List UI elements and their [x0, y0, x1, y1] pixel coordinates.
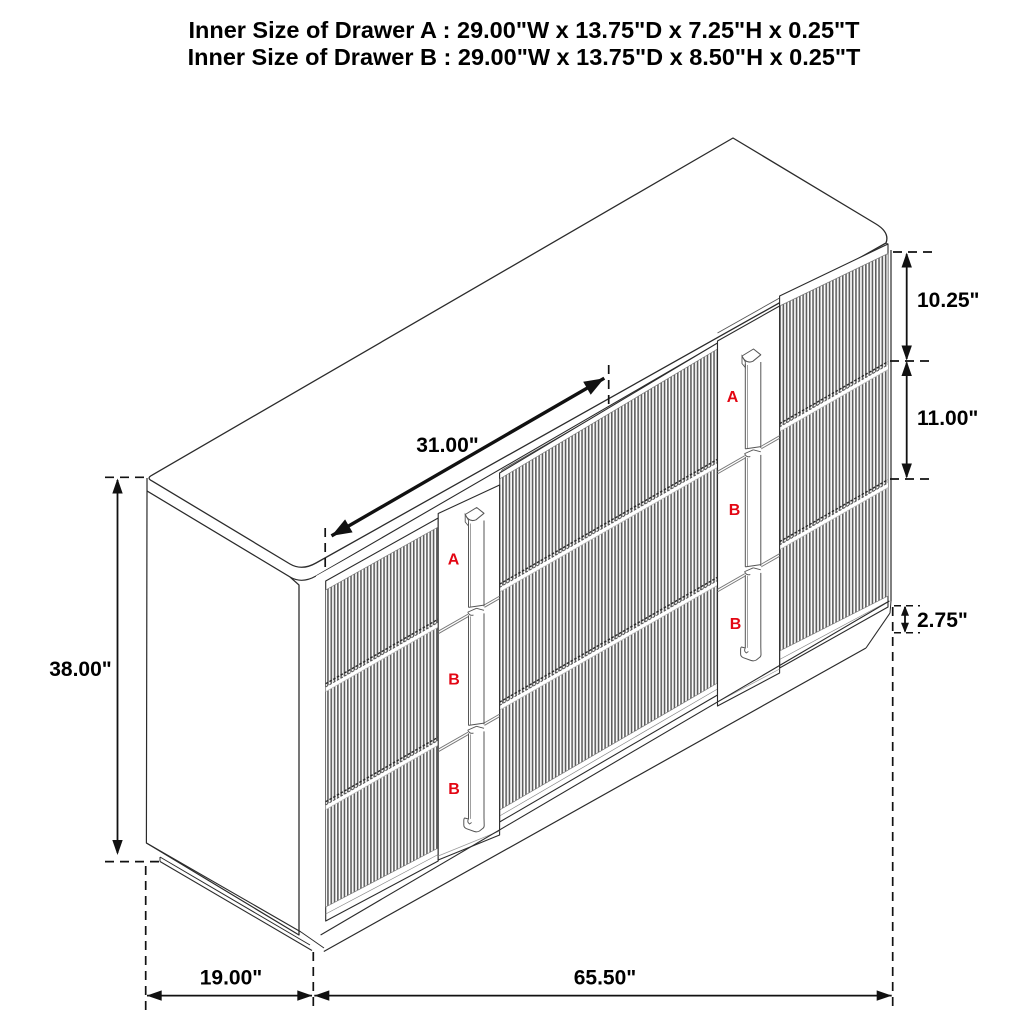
- svg-text:38.00": 38.00": [49, 658, 112, 681]
- svg-text:2.75": 2.75": [917, 609, 968, 632]
- svg-text:65.50": 65.50": [574, 967, 637, 990]
- svg-text:B: B: [448, 672, 460, 689]
- svg-text:31.00": 31.00": [416, 434, 479, 457]
- svg-text:19.00": 19.00": [200, 967, 263, 990]
- svg-text:A: A: [727, 389, 739, 406]
- svg-text:11.00": 11.00": [917, 407, 978, 430]
- svg-text:B: B: [448, 781, 460, 798]
- svg-text:B: B: [729, 502, 741, 519]
- svg-text:B: B: [730, 616, 742, 633]
- svg-text:A: A: [448, 552, 460, 569]
- svg-text:10.25": 10.25": [917, 289, 980, 312]
